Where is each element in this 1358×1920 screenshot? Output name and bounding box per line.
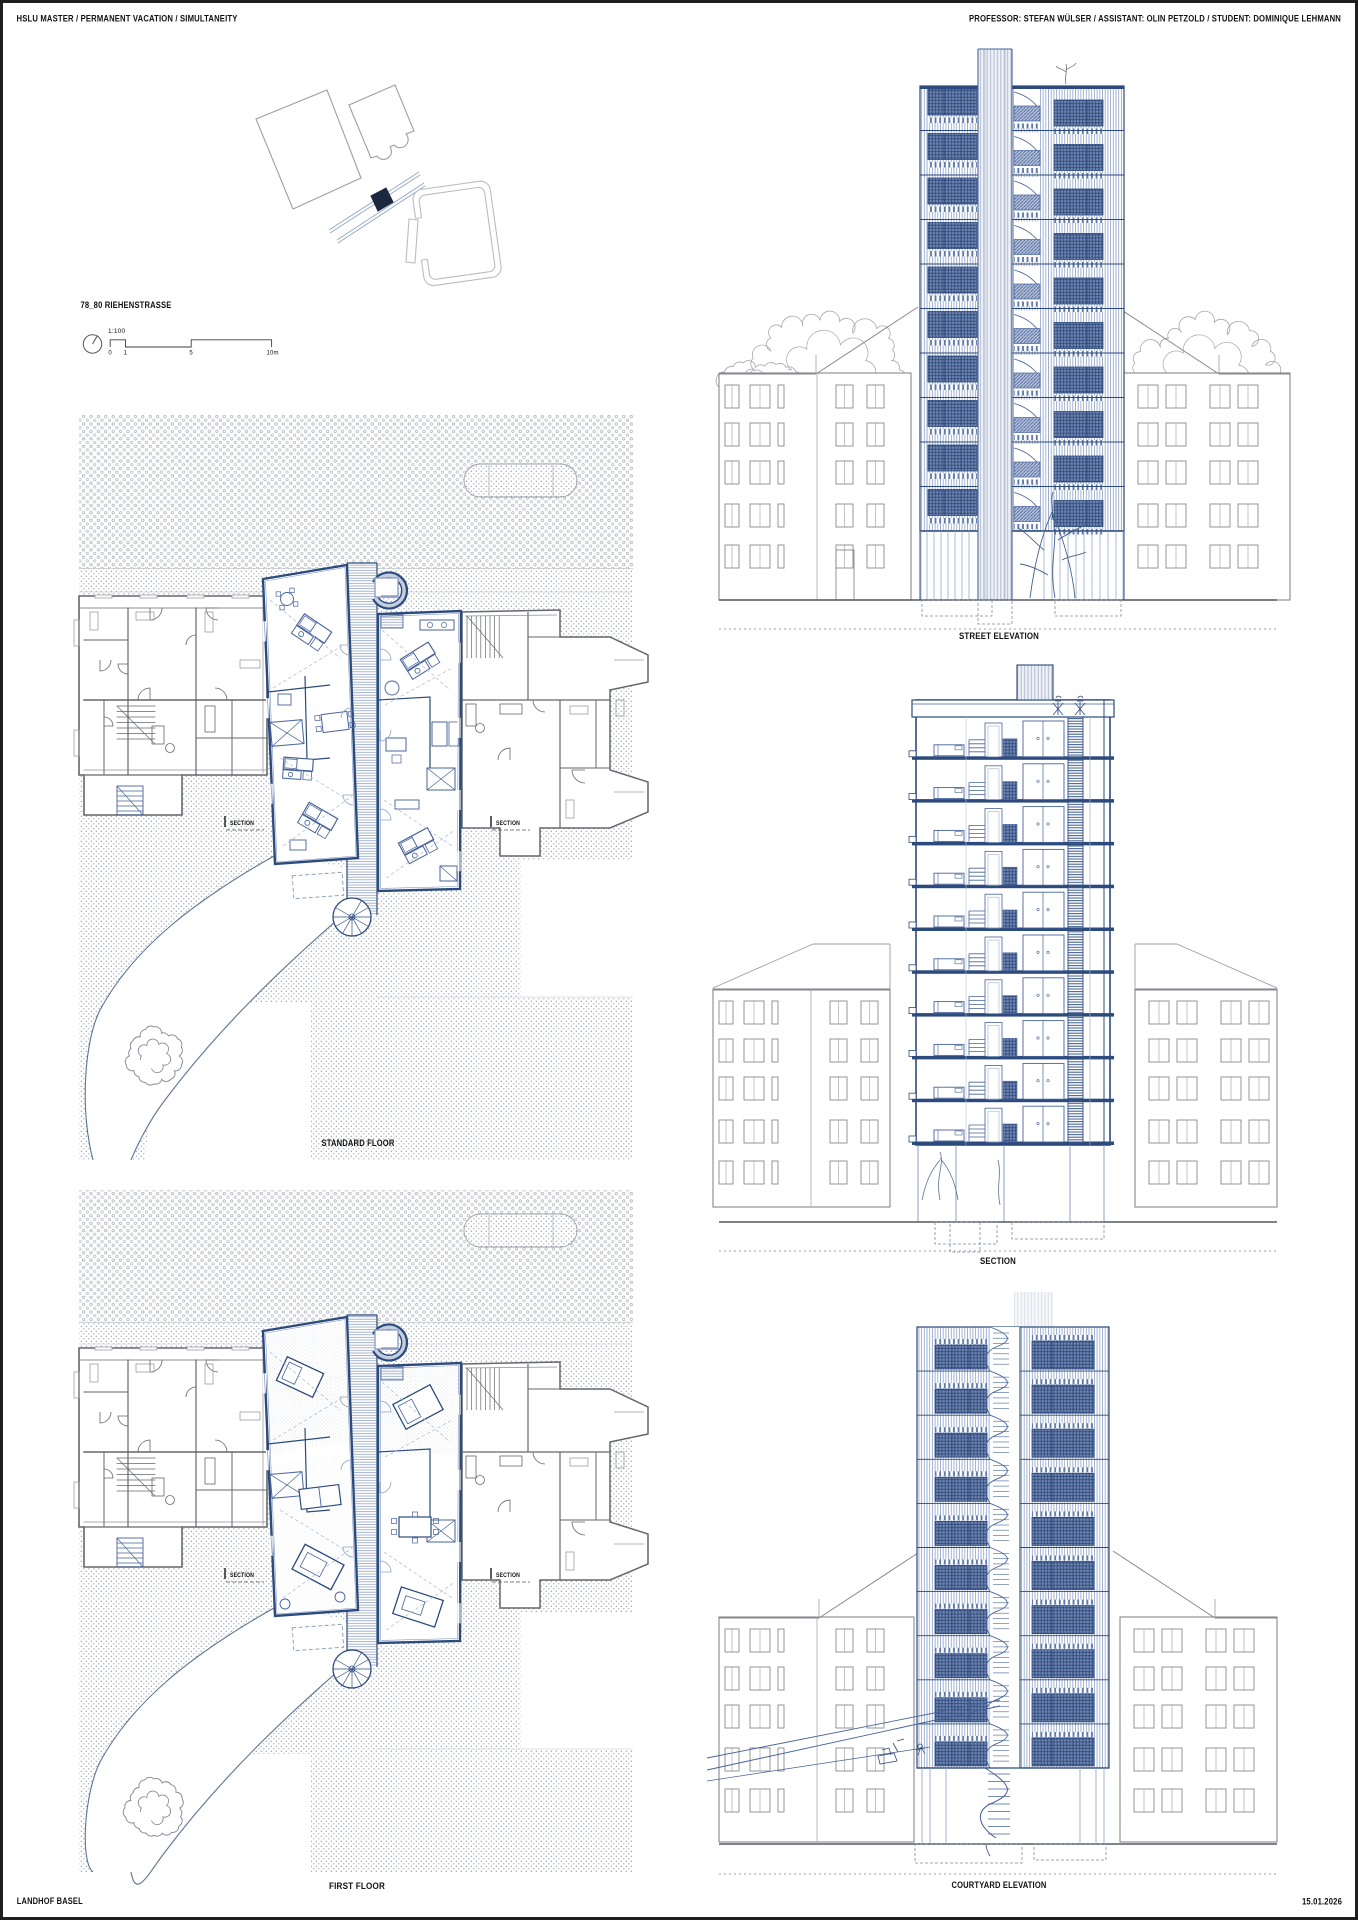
svg-text:SECTION: SECTION: [496, 1572, 520, 1579]
svg-text:HSLU MASTER / PERMANENT VACATI: HSLU MASTER / PERMANENT VACATION / SIMUL…: [17, 14, 238, 24]
svg-text:SECTION: SECTION: [496, 820, 520, 827]
svg-text:SECTION: SECTION: [980, 1256, 1016, 1266]
svg-text:1: 1: [124, 351, 128, 357]
svg-text:PROFESSOR: STEFAN WÜLSER / ASS: PROFESSOR: STEFAN WÜLSER / ASSISTANT: OL…: [969, 14, 1341, 24]
svg-text:10m: 10m: [266, 351, 278, 357]
svg-text:SECTION: SECTION: [230, 820, 254, 827]
svg-text:LANDHOF BASEL: LANDHOF BASEL: [17, 1896, 83, 1906]
svg-text:STANDARD FLOOR: STANDARD FLOOR: [322, 1138, 395, 1148]
svg-text:78_80 RIEHENSTRASSE: 78_80 RIEHENSTRASSE: [81, 300, 172, 310]
svg-text:COURTYARD ELEVATION: COURTYARD ELEVATION: [952, 1880, 1047, 1890]
svg-text:5: 5: [189, 351, 193, 357]
svg-text:STREET ELEVATION: STREET ELEVATION: [959, 631, 1039, 641]
svg-text:FIRST FLOOR: FIRST FLOOR: [329, 1881, 385, 1891]
svg-text:0: 0: [108, 351, 112, 357]
svg-text:1:100: 1:100: [108, 328, 125, 335]
svg-text:15.01.2026: 15.01.2026: [1302, 1897, 1342, 1907]
svg-text:SECTION: SECTION: [230, 1572, 254, 1579]
